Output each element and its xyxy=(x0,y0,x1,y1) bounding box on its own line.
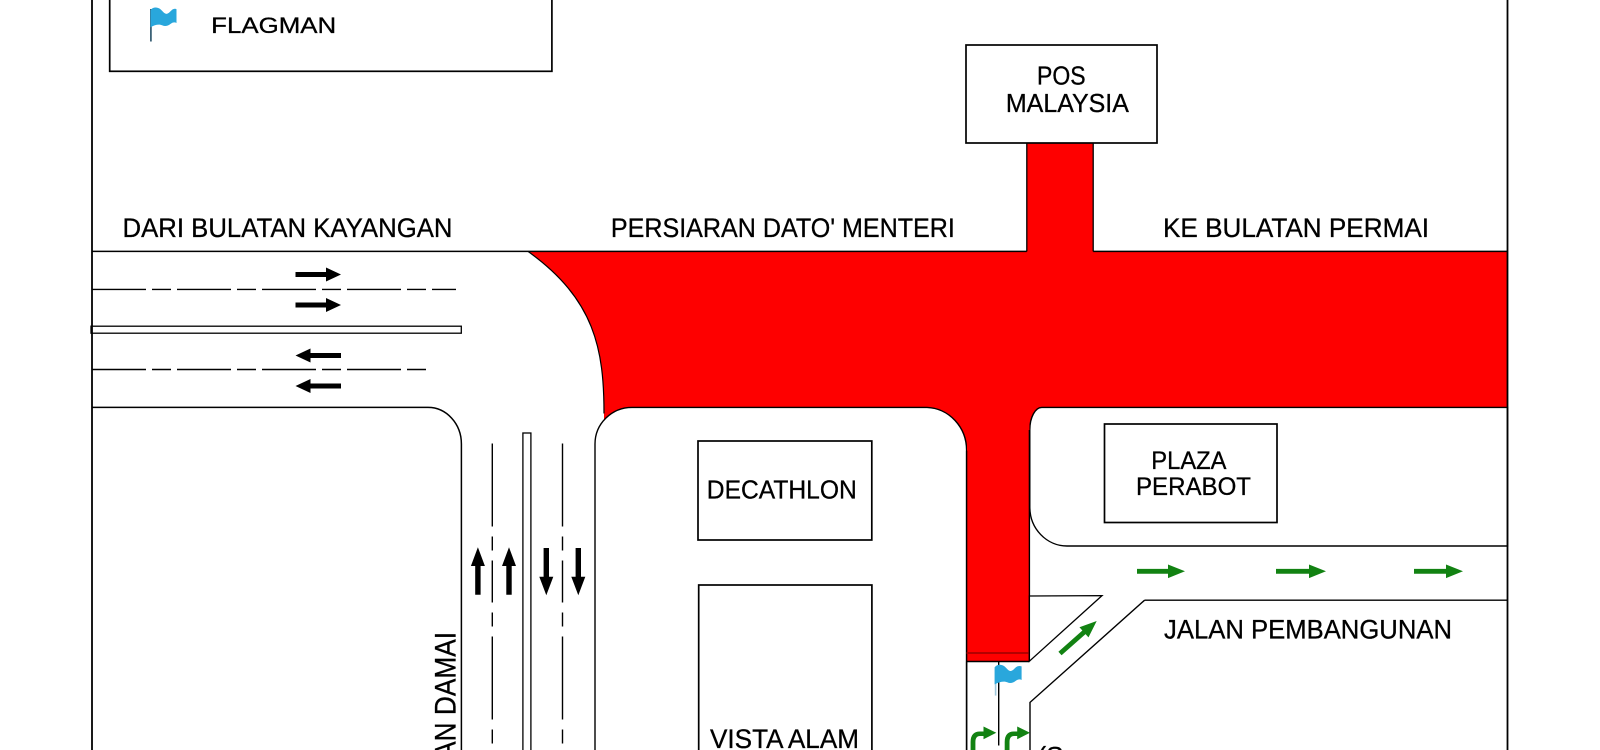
svg-text:VISTA ALAM: VISTA ALAM xyxy=(710,724,859,750)
svg-text:KE BULATAN PERMAI: KE BULATAN PERMAI xyxy=(1163,213,1429,243)
svg-text:DECATHLON: DECATHLON xyxy=(707,474,857,504)
svg-text:PLAZA: PLAZA xyxy=(1151,447,1227,475)
svg-text:(S: (S xyxy=(1038,741,1064,750)
svg-text:PERSIARAN DATO' MENTERI: PERSIARAN DATO' MENTERI xyxy=(611,213,955,243)
svg-text:POS: POS xyxy=(1037,60,1086,90)
svg-text:DARI BULATAN KAYANGAN: DARI BULATAN KAYANGAN xyxy=(123,213,453,243)
svg-text:PERABOT: PERABOT xyxy=(1136,473,1251,501)
svg-text:MALAYSIA: MALAYSIA xyxy=(1006,88,1130,118)
svg-text:FLAGMAN: FLAGMAN xyxy=(211,13,336,38)
svg-text:JALAN PEMBANGUNAN: JALAN PEMBANGUNAN xyxy=(1164,614,1452,644)
svg-text:PERSIARAN DAMAI: PERSIARAN DAMAI xyxy=(430,632,463,750)
